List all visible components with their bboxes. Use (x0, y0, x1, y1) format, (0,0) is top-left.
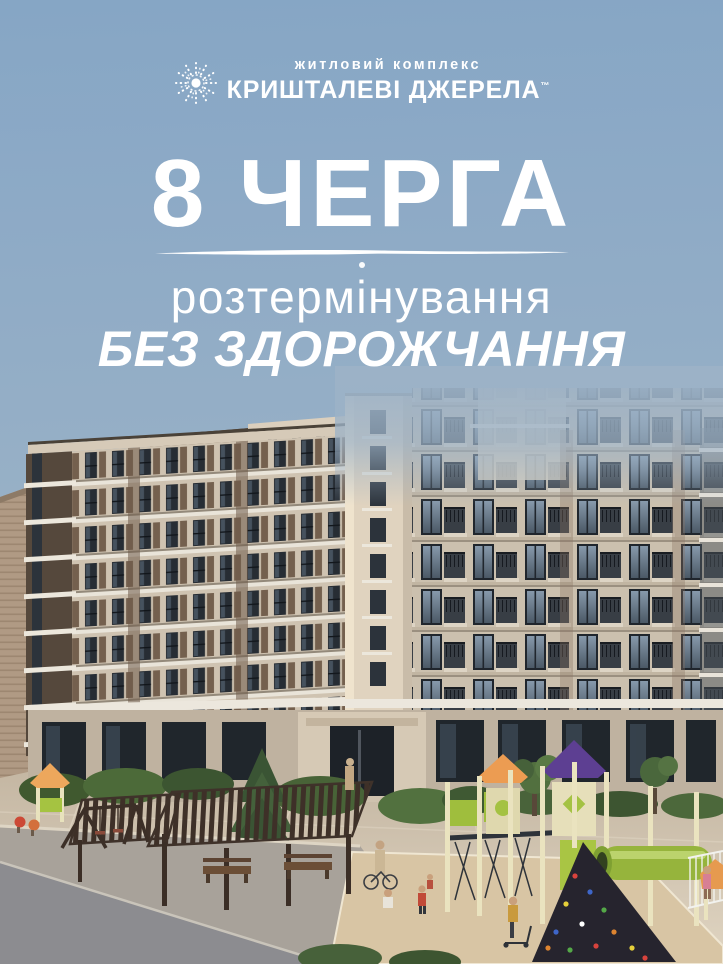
text-layer: житловий комплекс КРИШТАЛЕВІ ДЖЕРЕЛА™ 8 … (0, 0, 723, 374)
toddler (427, 874, 433, 889)
logo-title: КРИШТАЛЕВІ ДЖЕРЕЛА™ (227, 78, 550, 103)
tube-slide (592, 846, 712, 880)
phase-title: 8 ЧЕРГА (0, 146, 723, 242)
poster: житловий комплекс КРИШТАЛЕВІ ДЖЕРЕЛА™ 8 … (0, 0, 723, 964)
person-at-entrance (345, 758, 354, 790)
headline-block: 8 ЧЕРГА розтермінування БЕЗ ЗДОРОЖЧАННЯ (0, 146, 723, 374)
logo: житловий комплекс КРИШТАЛЕВІ ДЖЕРЕЛА™ (0, 58, 723, 103)
child-standing (418, 885, 426, 914)
sky-haze (335, 366, 723, 506)
side-building-wall (0, 487, 28, 778)
brush-underline (153, 246, 571, 257)
logo-subtitle: житловий комплекс (295, 58, 481, 73)
subline-installment: розтермінування (0, 274, 723, 320)
dot-ornament (359, 262, 365, 268)
logo-text: житловий комплекс КРИШТАЛЕВІ ДЖЕРЕЛА™ (227, 58, 550, 103)
logo-title-text: КРИШТАЛЕВІ ДЖЕРЕЛА (227, 76, 541, 104)
subline-no-price-increase: БЕЗ ЗДОРОЖЧАННЯ (0, 324, 723, 374)
starburst-sparkle-icon (174, 61, 218, 105)
girl-right (703, 866, 711, 899)
trademark-mark: ™ (540, 80, 549, 90)
child-sitting (383, 889, 393, 908)
